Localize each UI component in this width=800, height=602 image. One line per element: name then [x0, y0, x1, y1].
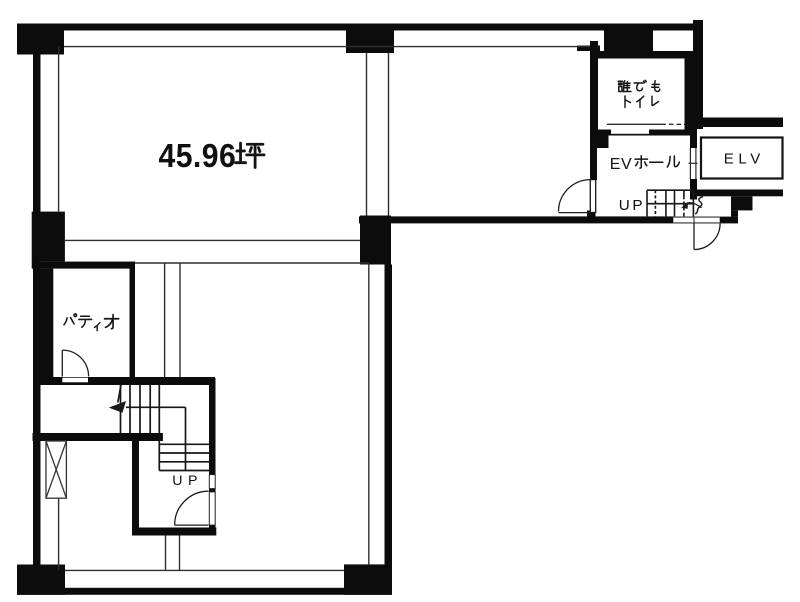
- svg-text:UP: UP: [172, 473, 203, 489]
- svg-text:ELV: ELV: [724, 151, 765, 168]
- svg-text:45.96: 45.96: [159, 137, 237, 175]
- svg-text:UP: UP: [619, 197, 645, 214]
- svg-text:EV: EV: [610, 156, 632, 173]
